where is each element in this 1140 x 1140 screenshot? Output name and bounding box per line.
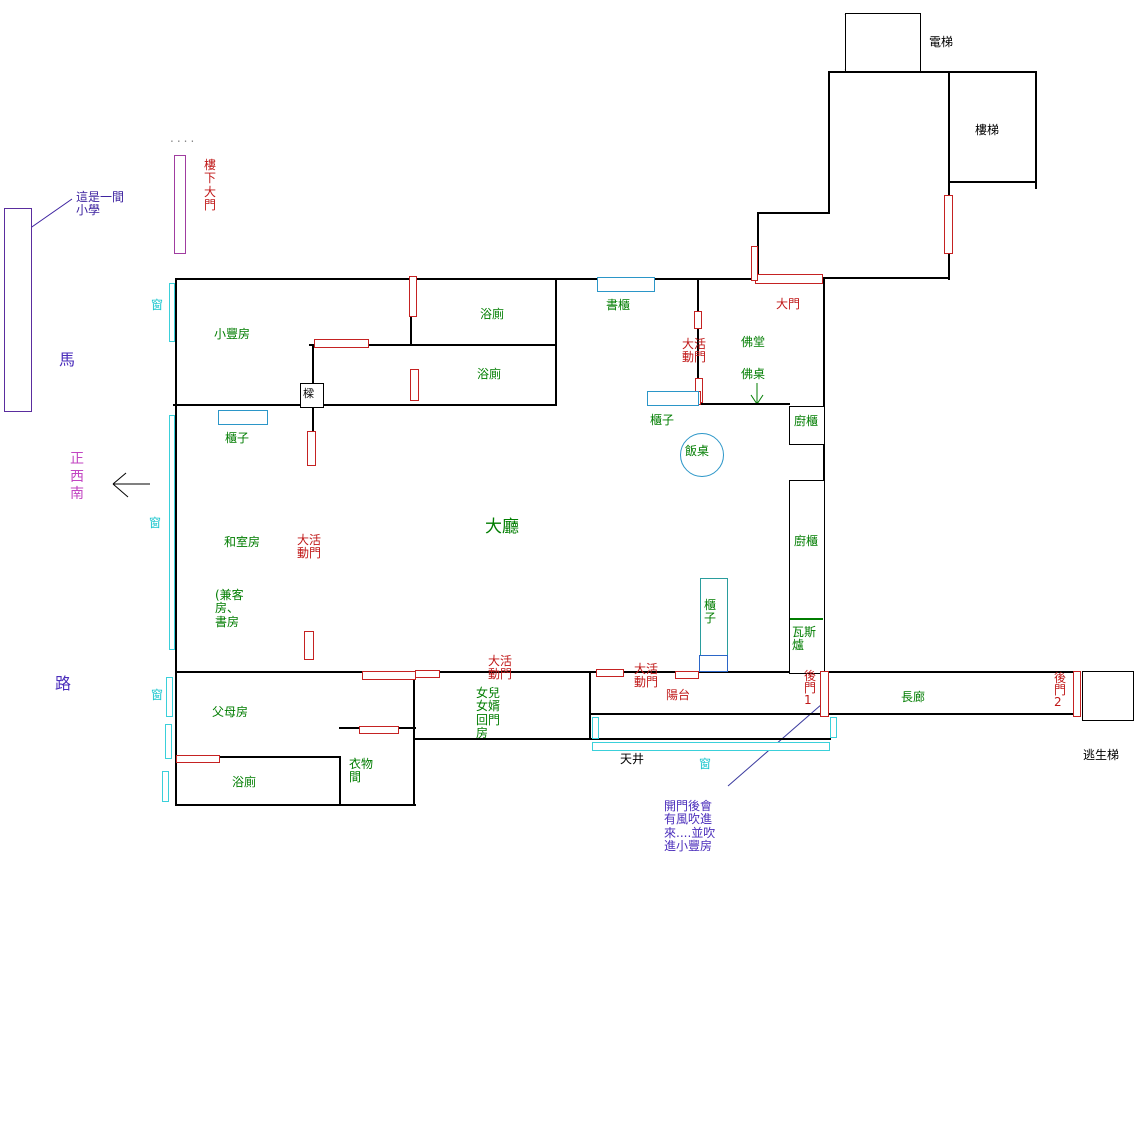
wall-segment bbox=[312, 346, 314, 384]
wall-segment bbox=[175, 673, 177, 806]
window-label-3: 窗 bbox=[151, 689, 163, 702]
wall-segment bbox=[555, 280, 557, 406]
door-balcony-right bbox=[675, 671, 699, 679]
daughter-note: 女兒 女婿 回門 房 bbox=[476, 687, 500, 741]
window-label-1: 窗 bbox=[151, 299, 163, 312]
door-guest-room bbox=[304, 631, 314, 660]
window-parents-1 bbox=[166, 677, 173, 717]
direction-label: 正 西 南 bbox=[70, 451, 86, 504]
kitchen-cabinet2-label: 廚櫃 bbox=[794, 535, 818, 548]
wall-segment bbox=[589, 713, 1081, 715]
living-room-label: 大廳 bbox=[485, 518, 519, 537]
escape-stairs-label: 逃生梯 bbox=[1083, 749, 1119, 762]
bookcase-label: 書櫃 bbox=[606, 299, 630, 312]
parents-room-label: 父母房 bbox=[212, 706, 248, 719]
movable-door-label-4: 大活 動門 bbox=[634, 663, 658, 690]
dining-table-label: 飯桌 bbox=[685, 445, 709, 458]
school-note: 這是一間 小學 bbox=[76, 191, 124, 218]
movable-door-label-2: 大活 動門 bbox=[297, 534, 321, 561]
wall-segment bbox=[173, 404, 557, 406]
gas-stove-label: 瓦斯 爐 bbox=[792, 626, 816, 653]
movable-door-label-3: 大活 動門 bbox=[488, 655, 512, 682]
beam-label: 樑 bbox=[303, 388, 314, 400]
wall-segment bbox=[949, 181, 1037, 183]
road-label-1: 馬 bbox=[59, 351, 75, 369]
door-lobby-right bbox=[944, 195, 953, 254]
cabinet2-shape bbox=[647, 391, 699, 406]
wall-segment bbox=[1035, 71, 1037, 189]
wall-segment bbox=[823, 277, 950, 279]
window-left-long bbox=[169, 415, 175, 650]
cabinet2-label: 櫃子 bbox=[650, 414, 674, 427]
window-label-4: 窗 bbox=[699, 758, 711, 771]
movable-door-label-1: 大活 動門 bbox=[682, 338, 706, 365]
wall-segment bbox=[697, 403, 790, 405]
tall-cabinet-label: 櫃 子 bbox=[704, 599, 718, 626]
dots-mark: .... bbox=[170, 132, 197, 145]
wall-segment bbox=[828, 71, 1037, 73]
back-door1-label: 後 門 1 bbox=[804, 670, 818, 706]
door-bathroom1 bbox=[409, 276, 417, 317]
door-back-1 bbox=[820, 671, 829, 717]
floor-plan-canvas: 電梯 樓梯 樓 下 大 門 .... 這是一間 小學 馬 路 正 西 南 窗 窗… bbox=[0, 0, 1140, 1140]
stairs-label: 樓梯 bbox=[975, 124, 999, 137]
bookcase-shape bbox=[597, 277, 655, 292]
door-buddha-hall-upper bbox=[694, 311, 702, 329]
cabinet1-shape bbox=[218, 410, 268, 425]
elevator-label: 電梯 bbox=[929, 36, 953, 49]
closet-room-label: 衣物 間 bbox=[349, 758, 373, 785]
door-balcony-left bbox=[596, 669, 624, 677]
cabinet1-label: 櫃子 bbox=[225, 432, 249, 445]
school-building bbox=[4, 208, 32, 412]
gas-stove-divider bbox=[790, 618, 823, 620]
door-bathroom2 bbox=[410, 369, 419, 401]
door-main-entrance bbox=[755, 274, 823, 284]
door-tatami-room bbox=[307, 431, 316, 466]
wall-segment bbox=[175, 278, 177, 673]
road-label-2: 路 bbox=[55, 675, 71, 693]
bathroom2-label: 浴廁 bbox=[477, 368, 501, 381]
wall-segment bbox=[757, 212, 830, 214]
bathroom3-label: 浴廁 bbox=[232, 776, 256, 789]
window-courtyard-long bbox=[592, 742, 830, 751]
main-door-label: 大門 bbox=[776, 298, 800, 311]
window-parents-3 bbox=[162, 771, 169, 802]
wall-segment bbox=[175, 278, 825, 280]
tall-cabinet-base bbox=[699, 655, 728, 672]
courtyard-label: 天井 bbox=[620, 753, 644, 766]
back-door2-label: 後 門 2 bbox=[1054, 672, 1068, 708]
downstairs-door-label: 樓 下 大 門 bbox=[204, 159, 218, 213]
window-label-2: 窗 bbox=[149, 517, 161, 530]
window-courtyard-right bbox=[830, 717, 837, 738]
buddha-hall-label: 佛堂 bbox=[741, 336, 765, 349]
window-parents-2 bbox=[165, 724, 172, 759]
window-courtyard-left bbox=[592, 717, 599, 739]
bathroom1-label: 浴廁 bbox=[480, 308, 504, 321]
door-lobby-left bbox=[751, 246, 758, 281]
door-back-2 bbox=[1073, 671, 1081, 717]
wall-segment bbox=[175, 671, 1081, 673]
buddha-table-label: 佛桌 bbox=[741, 368, 765, 381]
wall-segment bbox=[312, 406, 314, 433]
xiaofeng-room-label: 小豐房 bbox=[214, 328, 250, 341]
corridor-label: 長廊 bbox=[901, 691, 925, 704]
door-xiaofeng-room bbox=[314, 339, 369, 348]
downstairs-main-door-shape bbox=[174, 155, 186, 254]
door-bathroom3 bbox=[176, 755, 220, 763]
door-bottom-left-a bbox=[362, 671, 416, 680]
tatami-room-label: 和室房 bbox=[224, 536, 260, 549]
guest-study-note: (兼客 房、 書房 bbox=[215, 589, 244, 629]
balcony-label: 陽台 bbox=[666, 689, 690, 702]
kitchen-cabinet1-label: 廚櫃 bbox=[794, 415, 818, 428]
door-bottom-left-b bbox=[415, 670, 440, 678]
wind-note: 開門後會 有風吹進 來....並吹 進小豐房 bbox=[664, 800, 715, 854]
wall-segment bbox=[828, 71, 830, 214]
window-left-upper bbox=[169, 283, 175, 342]
escape-stair-landing bbox=[1082, 671, 1134, 721]
wall-segment bbox=[413, 673, 415, 806]
wall-segment bbox=[175, 804, 416, 806]
wall-segment bbox=[589, 671, 591, 740]
elevator-shaft bbox=[845, 13, 921, 72]
wall-segment bbox=[339, 756, 341, 806]
door-closet bbox=[359, 726, 399, 734]
